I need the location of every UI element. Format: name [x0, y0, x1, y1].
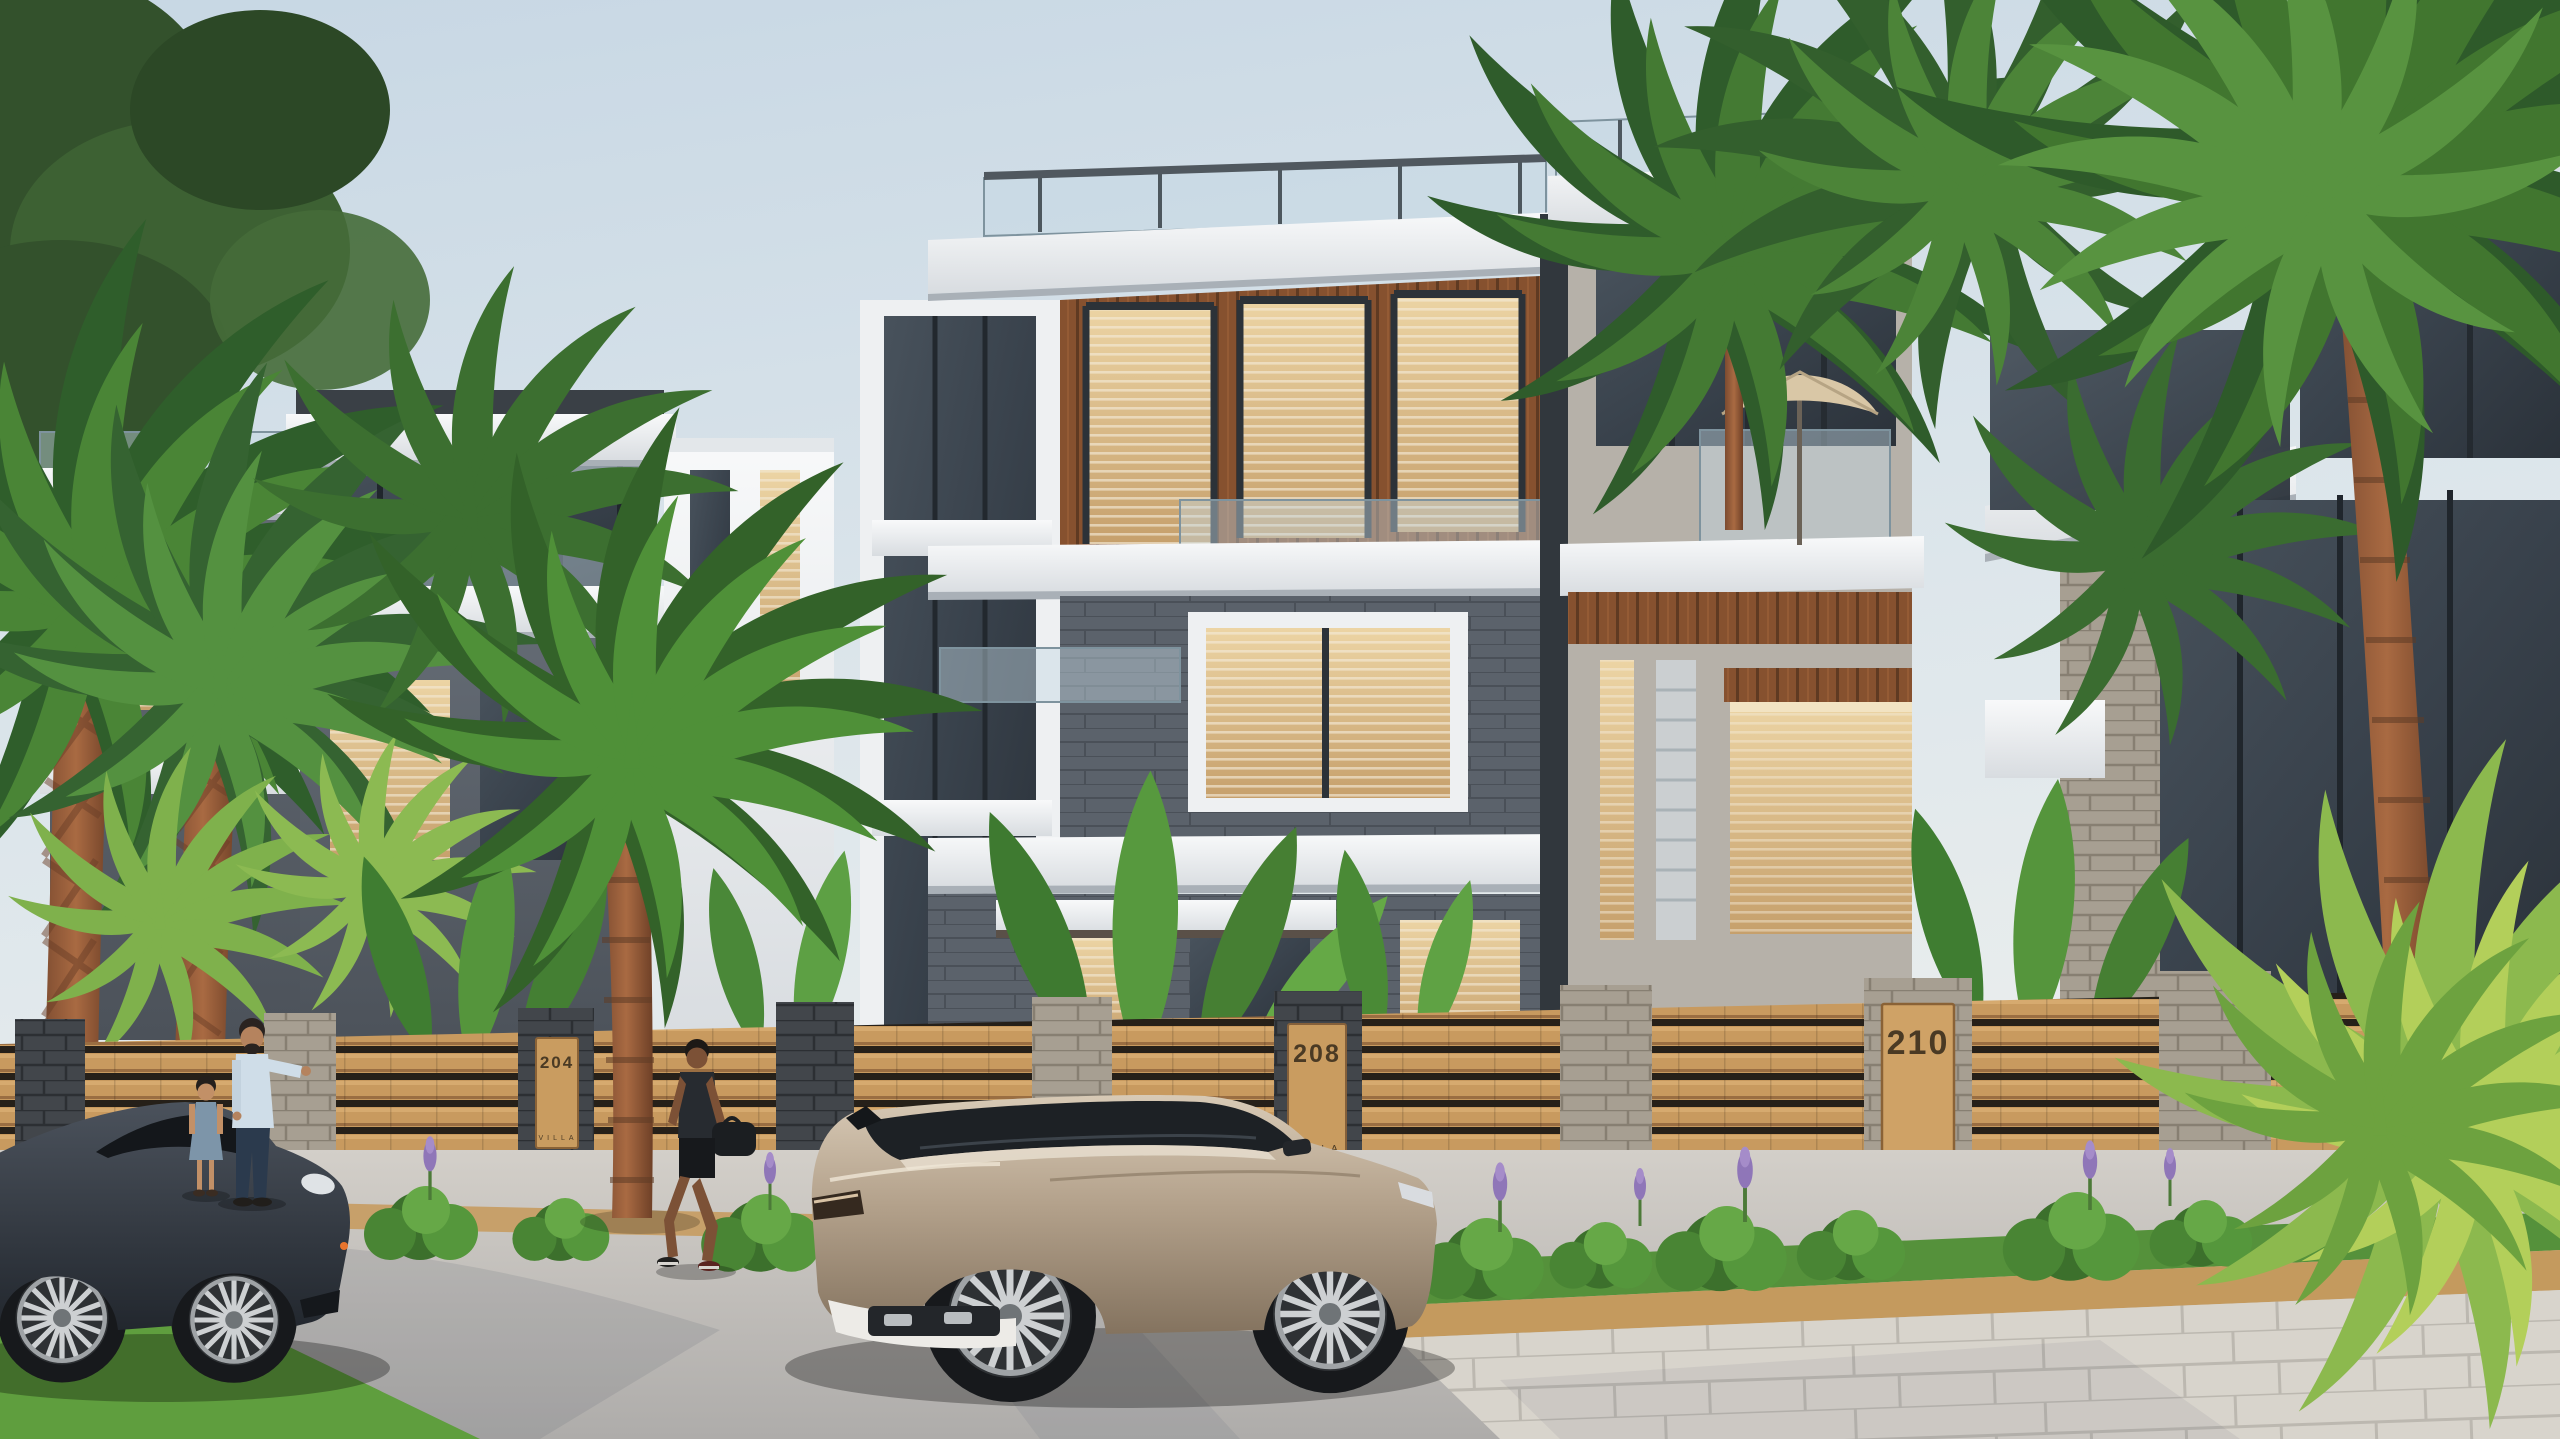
villa-plaque-204: 204 VILLA [536, 1038, 578, 1148]
scene-canvas: 204 VILLA 208 VILLA 210 VILLA [0, 0, 2560, 1439]
plaque-210-number: 210 [1887, 1024, 1950, 1062]
plaque-204-label: VILLA [538, 1135, 577, 1142]
plaque-208-number: 208 [1293, 1040, 1341, 1068]
plaque-204-number: 204 [540, 1053, 574, 1072]
architectural-render: 204 VILLA 208 VILLA 210 VILLA [0, 0, 2560, 1439]
